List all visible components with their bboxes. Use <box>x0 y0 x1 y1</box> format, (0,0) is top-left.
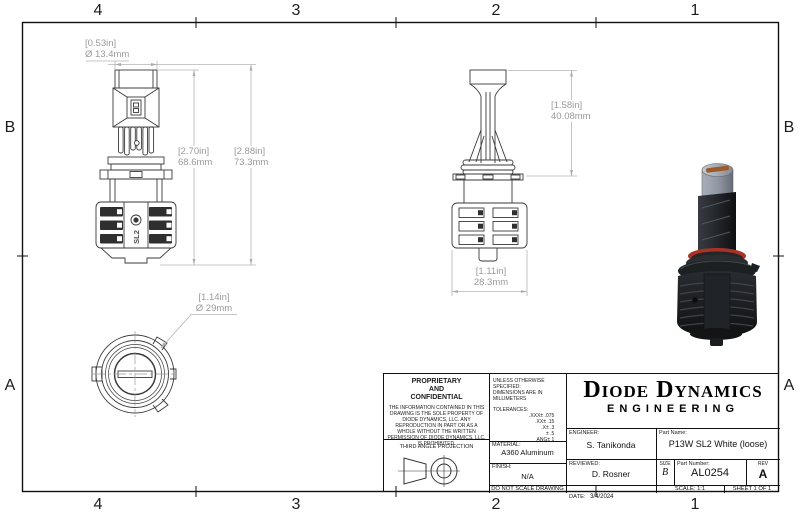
front-view: SL2 <box>96 70 176 263</box>
zone-label: 2 <box>492 496 501 514</box>
third-angle-projection-icon <box>384 451 489 491</box>
zone-label: 1 <box>691 2 700 20</box>
reviewed-cell: REVIEWED: D. Rosner <box>566 459 656 485</box>
dim-total-height: [2.88in] 73.3mm <box>233 146 269 168</box>
company-subtitle: ENGINEERING <box>566 403 780 415</box>
side-view <box>452 70 527 261</box>
dim-flange-diameter: [1.14in] Ø 29mm <box>186 292 242 314</box>
dim-heatsink-width: [1.11in] 28.3mm <box>464 266 518 288</box>
size-cell: SIZE B <box>656 459 674 485</box>
zone-label: 3 <box>292 2 301 20</box>
dim-upper-length: [1.58in] 40.08mm <box>550 100 592 122</box>
finish-cell: FINISH: N/A <box>489 463 566 485</box>
zone-label: B <box>784 119 795 137</box>
company-logo: Diode Dynamics ENGINEERING <box>566 374 780 428</box>
title-block: PROPRIETARY AND CONFIDENTIAL THE INFORMA… <box>383 373 779 492</box>
scale-cell: SCALE: 1:1 <box>656 485 724 493</box>
zone-label: 1 <box>691 496 700 514</box>
sheet-cell: SHEET 1 OF 1 <box>724 485 780 493</box>
zone-label: 3 <box>292 496 301 514</box>
drawing-sheet: SL2 <box>0 0 800 518</box>
product-marking: SL2 <box>132 230 141 244</box>
material-cell: MATERIAL: A360 Aluminum <box>489 441 566 463</box>
dimension-lines <box>86 61 577 348</box>
dim-body-height: [2.70in] 68.6mm <box>177 146 213 168</box>
engineer-cell: ENGINEER: S. Tanikonda <box>566 428 656 459</box>
iso-view <box>677 164 760 347</box>
do-not-scale-cell: DO NOT SCALE DRAWING <box>489 485 566 493</box>
projection-cell: THIRD ANGLE PROJECTION <box>384 439 489 493</box>
zone-label: B <box>5 119 16 137</box>
dimension-arrows <box>115 63 573 348</box>
rev-cell: REV A <box>746 459 780 485</box>
zone-label: 2 <box>492 2 501 20</box>
part-number-cell: Part Number: AL0254 <box>674 459 746 485</box>
part-name-cell: Part Name: P13W SL2 White (loose) <box>656 428 780 459</box>
zone-label: 4 <box>94 2 103 20</box>
date-cell: DATE: 3/4/2024 <box>566 485 656 493</box>
zone-label: A <box>5 377 16 395</box>
led-fin-section <box>698 192 736 256</box>
dim-tube-diameter: [0.53in] Ø 13.4mm <box>84 38 130 60</box>
company-name: Diode Dynamics <box>566 374 780 403</box>
tolerance-cell: UNLESS OTHERWISE SPECIFIED: DIMENSIONS A… <box>489 374 566 441</box>
zone-label: 4 <box>94 496 103 514</box>
zone-label: A <box>784 377 795 395</box>
proprietary-cell: PROPRIETARY AND CONFIDENTIAL THE INFORMA… <box>384 374 489 439</box>
